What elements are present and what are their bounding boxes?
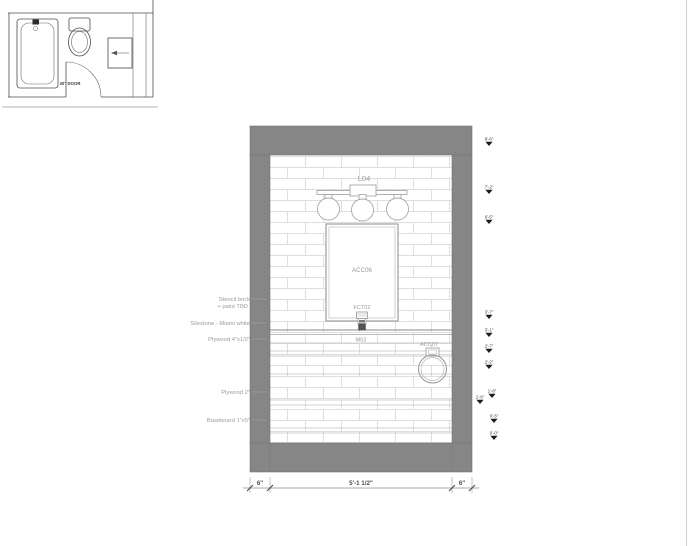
elevation-marker: 3'-7" bbox=[485, 310, 494, 320]
svg-text:Stencil brick: Stencil brick bbox=[219, 297, 250, 303]
elevation-marker: 0'-5" bbox=[490, 414, 499, 424]
elevation-marker: 2'-7" bbox=[485, 344, 494, 354]
elevation-marker: 3'-1" bbox=[485, 328, 494, 338]
drawing-sheet: 30" DOOR L04 bbox=[0, 0, 689, 546]
floor-plan: 30" DOOR bbox=[2, 0, 158, 107]
svg-text:8'-6": 8'-6" bbox=[485, 137, 494, 142]
wall-band-right bbox=[452, 155, 472, 443]
elevation-marker: 2'-2" bbox=[485, 360, 494, 370]
svg-text:Baseboard 1"x5": Baseboard 1"x5" bbox=[207, 418, 250, 424]
elevation-marker: 6'-5" bbox=[485, 215, 494, 225]
elevation-view: L04 ACC06 FCT02 M02 bbox=[250, 126, 472, 472]
tub-drain-icon bbox=[34, 27, 38, 31]
light-globe-icon bbox=[352, 199, 374, 221]
svg-text:2'-2": 2'-2" bbox=[485, 360, 494, 365]
vanity-label: M02 bbox=[356, 338, 367, 344]
towel-ring-label: ACC07 bbox=[420, 342, 438, 348]
svg-text:0'-0": 0'-0" bbox=[490, 431, 499, 436]
vanity-plan bbox=[108, 38, 132, 68]
svg-text:3'-7": 3'-7" bbox=[485, 310, 494, 315]
elevation-markers: 8'-6" 7'-2" 6'-5" 3'-7" 3'-1" 2'-7" 2'-2… bbox=[476, 137, 499, 441]
svg-text:1'-8": 1'-8" bbox=[488, 389, 497, 394]
floor-band bbox=[250, 443, 472, 472]
svg-text:3'-1": 3'-1" bbox=[485, 328, 494, 333]
dimension-right: 6" bbox=[459, 480, 465, 487]
svg-text:Plywood 2": Plywood 2" bbox=[221, 390, 250, 396]
svg-text:Plywood 4"x1/2": Plywood 4"x1/2" bbox=[208, 337, 250, 343]
faucet-label: FCT02 bbox=[353, 305, 370, 311]
bathtub-plan bbox=[17, 19, 58, 88]
dimension-center: 5'-1 1/2" bbox=[349, 480, 373, 487]
svg-text:7'-2": 7'-2" bbox=[485, 185, 494, 190]
svg-text:+ paint TBD: + paint TBD bbox=[217, 304, 248, 310]
light-fixture-label: L04 bbox=[358, 174, 371, 183]
dimension-left: 6" bbox=[257, 480, 263, 487]
door-plan: 30" DOOR bbox=[60, 62, 101, 97]
elevation-marker: 7'-2" bbox=[485, 185, 494, 195]
svg-text:2'-7": 2'-7" bbox=[485, 344, 494, 349]
door-label: 30" DOOR bbox=[60, 81, 82, 86]
light-globe-icon bbox=[387, 198, 409, 220]
dimension-string: 6" 5'-1 1/2" 6" bbox=[243, 477, 479, 493]
svg-text:Silestone - Miami white: Silestone - Miami white bbox=[190, 321, 250, 327]
elevation-marker: 1'-6" bbox=[476, 395, 485, 405]
plan-walls bbox=[2, 0, 158, 107]
toilet-plan bbox=[69, 18, 91, 56]
svg-text:1'-6": 1'-6" bbox=[476, 395, 485, 400]
svg-text:0'-5": 0'-5" bbox=[490, 414, 499, 419]
mirror-label: ACC06 bbox=[352, 267, 373, 274]
bathroom-drawing: 30" DOOR L04 bbox=[0, 0, 689, 546]
light-globe-icon bbox=[318, 198, 340, 220]
section-marker-icon bbox=[111, 51, 117, 55]
tub-faucet-icon bbox=[33, 20, 40, 25]
elevation-marker: 0'-0" bbox=[490, 431, 499, 441]
wall-band-top bbox=[250, 126, 472, 155]
elevation-marker: 1'-8" bbox=[488, 389, 497, 399]
elevation-marker: 8'-6" bbox=[485, 137, 494, 147]
svg-text:6'-5": 6'-5" bbox=[485, 215, 494, 220]
